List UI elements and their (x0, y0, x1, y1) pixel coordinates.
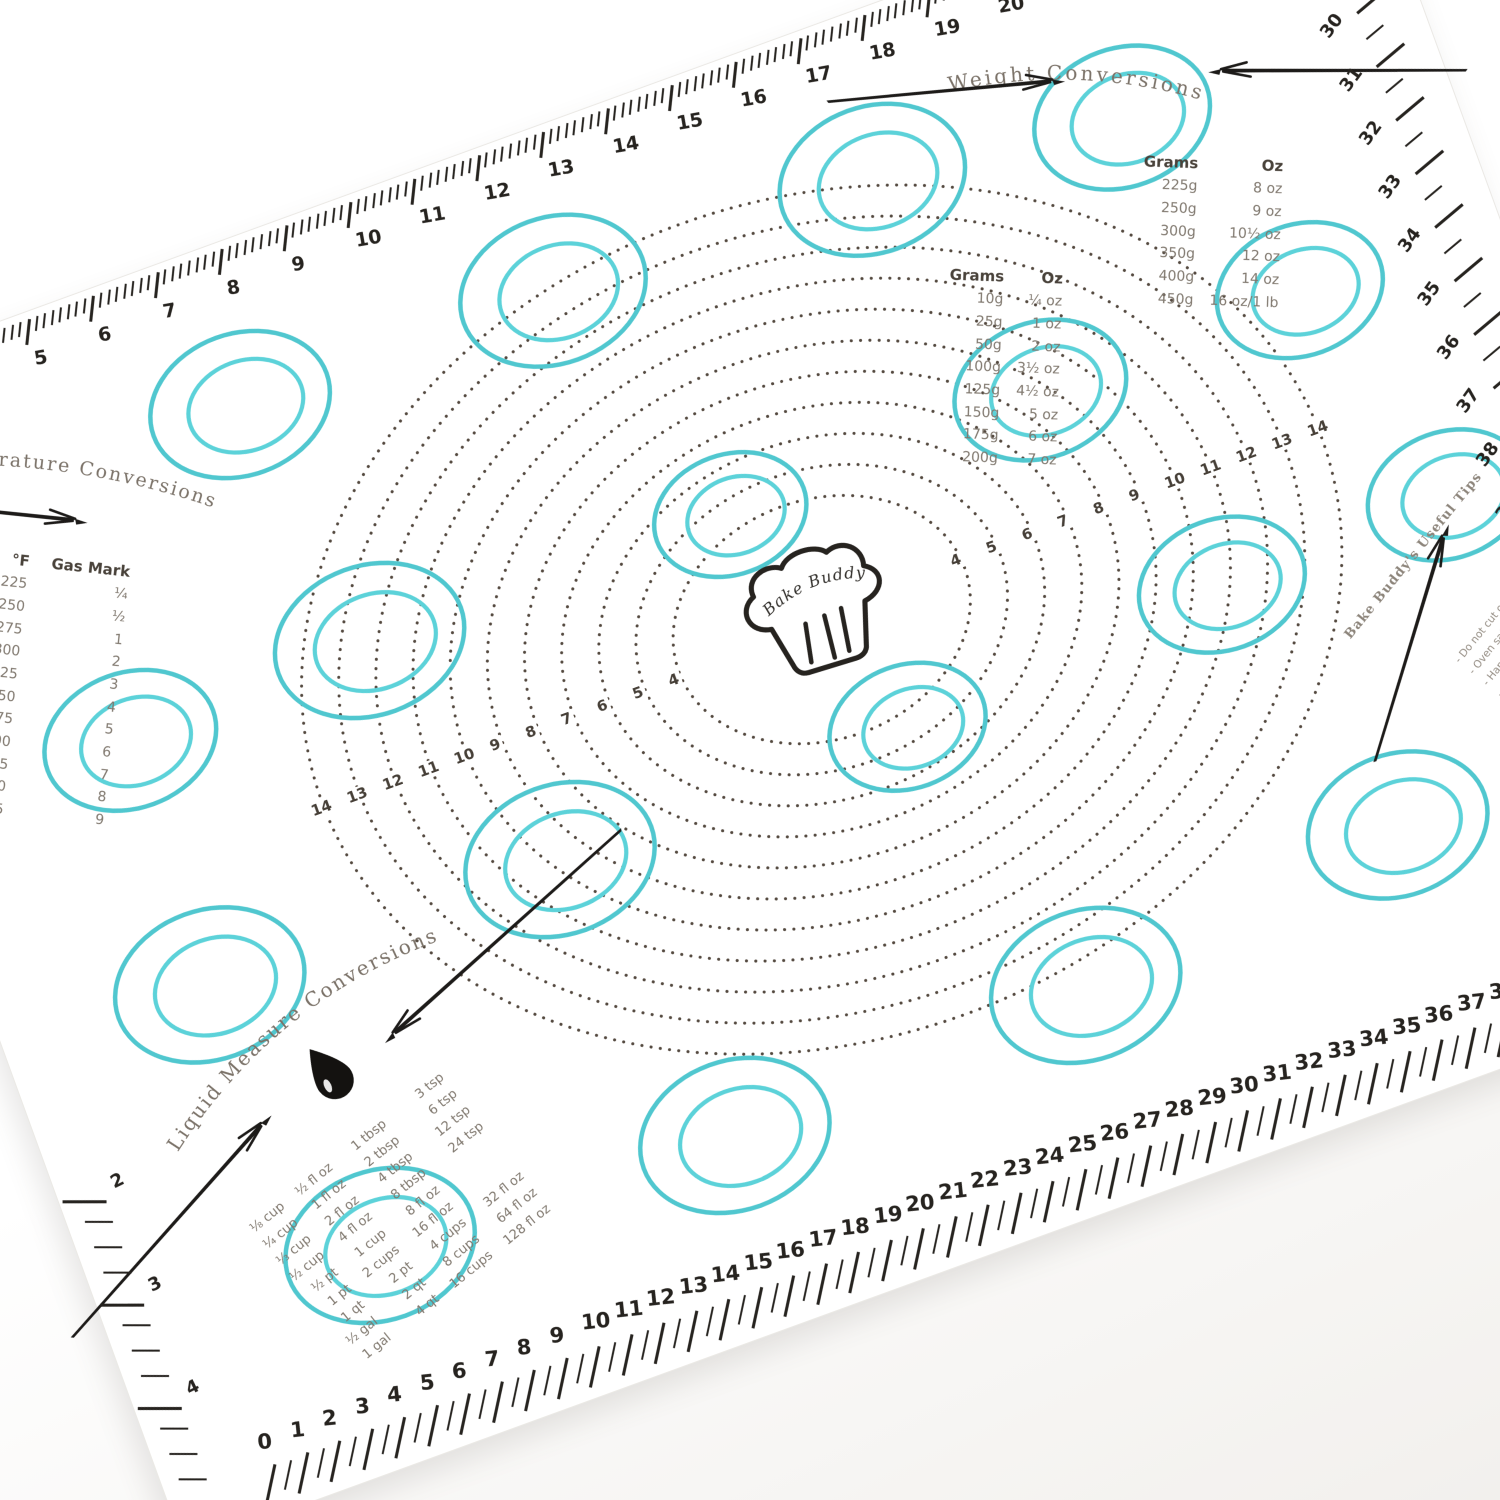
table-cell: 425 (0, 752, 9, 776)
ruler-number: 33 (1326, 1038, 1357, 1062)
cyan-circle-inner (486, 227, 632, 356)
ruler-number: 3 (354, 1396, 371, 1418)
table-cell: 10½ oz (1211, 222, 1281, 246)
ruler-number: 17 (807, 1227, 838, 1251)
ruler-number: 21 (937, 1180, 968, 1204)
ruler-number: 24 (1034, 1145, 1065, 1169)
ruler-number: 12 (645, 1286, 676, 1310)
table-cell: 300 (0, 639, 21, 663)
ruler-tick (100, 1304, 144, 1307)
table-cell: 4½ oz (1016, 381, 1060, 404)
table-cell: 50g (947, 333, 1002, 357)
table-cell: 100g (946, 356, 1001, 380)
ruler-number: 15 (675, 111, 704, 134)
ruler-number: 6 (451, 1360, 468, 1382)
ruler-number: 27 (1131, 1109, 1162, 1133)
ruler-number: 35 (1391, 1015, 1422, 1039)
table-cell: 2 oz (1017, 336, 1061, 359)
table-cell: 450 (0, 775, 7, 799)
table-cell: 125g (945, 379, 1000, 403)
table-cell: 16 oz/1 lb (1209, 290, 1279, 314)
table-cell: 150g (945, 401, 1000, 425)
ruler-tick (103, 1272, 131, 1274)
ruler-number: 5 (419, 1372, 436, 1394)
ruler-tick (160, 1428, 188, 1430)
ruler-number: 31 (1261, 1062, 1292, 1086)
weight-table-left: GramsOz10g¼ oz25g1 oz50g2 oz100g3½ oz125… (943, 264, 1063, 473)
table-cell: 450g (1139, 288, 1194, 312)
ruler-number: 36 (1423, 1003, 1454, 1027)
ruler-number: 9 (290, 254, 306, 275)
liquid-table: ⅛ cup½ fl oz1 tbsp3 tsp¼ cup1 fl oz2 tbs… (246, 1069, 556, 1370)
table-cell: 250g (1142, 197, 1197, 221)
ruler-number: 12 (482, 181, 511, 204)
ruler-number: 14 (710, 1263, 741, 1287)
ruler-number: 25 (1067, 1133, 1098, 1157)
ruler-number: 8 (516, 1337, 533, 1359)
ruler-number: 0 (256, 1431, 273, 1453)
table-cell: 9 oz (1212, 200, 1282, 224)
pointer-needle-icon (826, 73, 1066, 103)
table-cell: 12 oz (1211, 245, 1281, 269)
table-cell: 14 oz (1210, 268, 1280, 292)
ruler-number: 10 (580, 1310, 611, 1334)
ruler-number: 10 (354, 228, 383, 251)
cyan-circle-inner (852, 673, 975, 782)
table-cell: 475 (0, 797, 5, 821)
tips-list: - Do not cut on the mat- Oven safe up to… (1451, 535, 1500, 702)
ruler-number: 20 (904, 1192, 935, 1216)
cyan-circle-inner (1017, 921, 1166, 1053)
ruler-number: 13 (547, 157, 576, 180)
ruler-number: 22 (969, 1168, 1000, 1192)
svg-text:Oven Temperature Conversions: Oven Temperature Conversions (0, 433, 222, 514)
ruler-number: 30 (1229, 1074, 1260, 1098)
table-cell: 200g (943, 447, 998, 471)
ruler-number: 34 (1358, 1027, 1389, 1051)
ruler-number: 37 (1456, 991, 1487, 1015)
ruler-number: 19 (932, 17, 961, 40)
ruler-number: 9 (548, 1325, 565, 1347)
table-cell: 400g (1139, 265, 1194, 289)
cyan-circle-inner (805, 116, 951, 245)
ruler-number: 29 (1196, 1086, 1227, 1110)
table-cell: 300g (1141, 220, 1196, 244)
ruler-number: 4 (386, 1384, 403, 1406)
table-cell: 400 (0, 730, 12, 754)
table-cell: 225 (0, 572, 28, 596)
product-photo-pastry-mat: Bake Buddy Weight Conversions GramsOz10g… (0, 0, 1500, 1500)
ruler-number: 19 (872, 1204, 903, 1228)
table-cell: 5 oz (1015, 404, 1059, 427)
ruler-tick (94, 1246, 122, 1248)
table-cell: 375 (0, 707, 14, 731)
ruler-tick (85, 1221, 113, 1223)
ruler-number: 17 (804, 64, 833, 87)
table-header: Oz (1020, 266, 1064, 291)
table-cell: 10g (949, 288, 1004, 312)
ruler-number: 11 (613, 1298, 644, 1322)
ruler-number: 38 (1488, 979, 1500, 1003)
ruler-number: 14 (611, 134, 640, 157)
ruler-number: 7 (483, 1348, 500, 1370)
table-cell: 350g (1140, 243, 1195, 267)
table-cell: 25g (948, 311, 1003, 335)
ruler-number: 13 (677, 1274, 708, 1298)
ruler-tick (132, 1350, 160, 1352)
needle-svg (826, 73, 1066, 103)
ruler-number: 7 (161, 301, 177, 322)
ruler-tick (63, 1200, 107, 1203)
ruler-number: 18 (840, 1215, 871, 1239)
ruler-number: 28 (1164, 1097, 1195, 1121)
ruler-number: 23 (1002, 1156, 1033, 1180)
table-header: Oz (1214, 153, 1284, 179)
ruler-tick (123, 1324, 151, 1326)
table-cell: 8 oz (1213, 177, 1283, 201)
table-header: °F (2, 548, 31, 574)
table-cell: 1 oz (1018, 313, 1062, 336)
table-cell: 175g (944, 424, 999, 448)
table-cell: 325 (0, 662, 19, 686)
ruler-number: 1 (289, 1419, 306, 1441)
ruler-number: 32 (1293, 1050, 1324, 1074)
ruler-number: 16 (739, 87, 768, 110)
table-header: Grams (949, 264, 1004, 289)
ruler-tick (141, 1375, 169, 1377)
ruler-number: 2 (321, 1407, 338, 1429)
table-cell: 250 (0, 594, 26, 618)
ruler-number: 26 (1099, 1121, 1130, 1145)
table-cell: 6 oz (1014, 426, 1058, 449)
ruler-number: 18 (868, 40, 897, 63)
oven-title: Oven Temperature Conversions (0, 433, 222, 514)
oven-table: °C°FGas Mark110225¼120250½14027511503002… (0, 542, 131, 832)
ruler-tick (179, 1478, 207, 1480)
ruler-tick (138, 1407, 182, 1410)
table-cell: 275 (0, 617, 24, 641)
table-header: Grams (1143, 150, 1198, 175)
table-cell: ¼ oz (1019, 290, 1063, 313)
table-cell: 7 oz (1013, 449, 1057, 472)
ruler-number: 16 (775, 1239, 806, 1263)
ruler-number: 15 (742, 1251, 773, 1275)
mat-scene: Bake Buddy Weight Conversions GramsOz10g… (0, 0, 1500, 1500)
weight-table-right: GramsOz225g8 oz250g9 oz300g10½ oz350g12 … (1139, 150, 1284, 314)
table-cell: 225g (1143, 175, 1198, 199)
ruler-tick (169, 1453, 197, 1455)
table-cell: 350 (0, 684, 16, 708)
table-cell: 3½ oz (1017, 358, 1061, 381)
ruler-number: 11 (418, 204, 447, 227)
